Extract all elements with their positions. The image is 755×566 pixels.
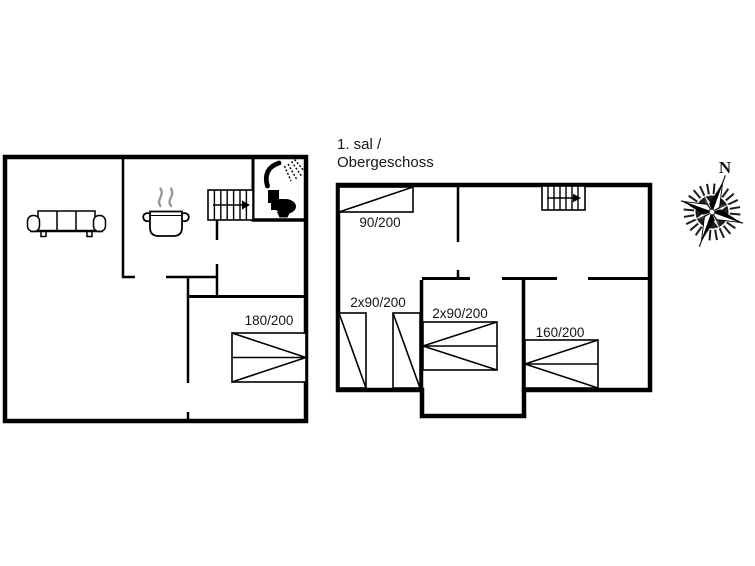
bed-size-label-2x90x200-singles: 2x90/200 <box>350 295 406 310</box>
bed-90x200 <box>339 187 413 212</box>
bed-160x200 <box>525 340 598 388</box>
ground-floor-plan <box>5 157 306 421</box>
stairs-icon <box>542 186 585 210</box>
compass-rose-icon <box>668 164 755 258</box>
stairs-icon <box>208 190 253 220</box>
compass-north-label: N <box>711 158 739 178</box>
bed-size-label-180x200: 180/200 <box>245 313 294 328</box>
bed-2x90x200-double <box>423 322 497 370</box>
bed-size-label-2x90x200-double: 2x90/200 <box>432 306 488 321</box>
bed-size-label-160x200: 160/200 <box>536 325 585 340</box>
bed-180x200 <box>232 333 306 382</box>
upper-floor-title-line2: Obergeschoss <box>337 154 434 172</box>
upper-floor-title: 1. sal /Obergeschoss <box>337 136 434 171</box>
bed-size-label-90x200: 90/200 <box>359 215 400 230</box>
upper-floor-title-line1: 1. sal / <box>337 136 434 154</box>
floorplan-drawing <box>0 0 755 566</box>
floorplan-page: 1. sal /Obergeschoss N 180/200 90/200 2x… <box>0 0 755 566</box>
